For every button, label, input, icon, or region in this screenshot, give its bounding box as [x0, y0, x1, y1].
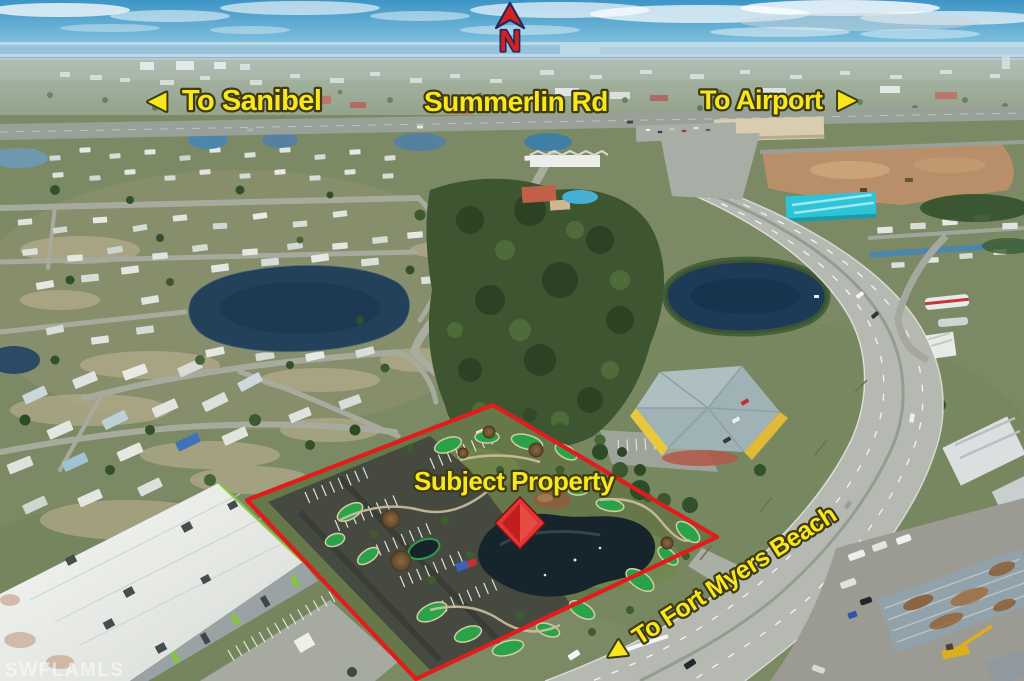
label-to-airport: To Airport	[700, 85, 823, 115]
label-subject-property: Subject Property	[414, 466, 615, 496]
watermark: SWFLAMLS	[5, 660, 125, 681]
aerial-photo: N ◀ To Sanibel Summerlin Rd To Airport ▶…	[0, 0, 1024, 681]
left-arrow-icon-sanibel: ◀	[148, 86, 167, 114]
aerial-scene: N ◀ To Sanibel Summerlin Rd To Airport ▶…	[0, 0, 1024, 681]
north-label: N	[499, 25, 521, 58]
teal-building	[785, 192, 876, 223]
label-summerlin-rd: Summerlin Rd	[424, 86, 608, 117]
right-arrow-icon-airport: ▶	[838, 85, 857, 113]
plaza-roof	[530, 155, 600, 167]
label-to-sanibel: To Sanibel	[182, 85, 321, 117]
right-lake	[665, 260, 828, 334]
